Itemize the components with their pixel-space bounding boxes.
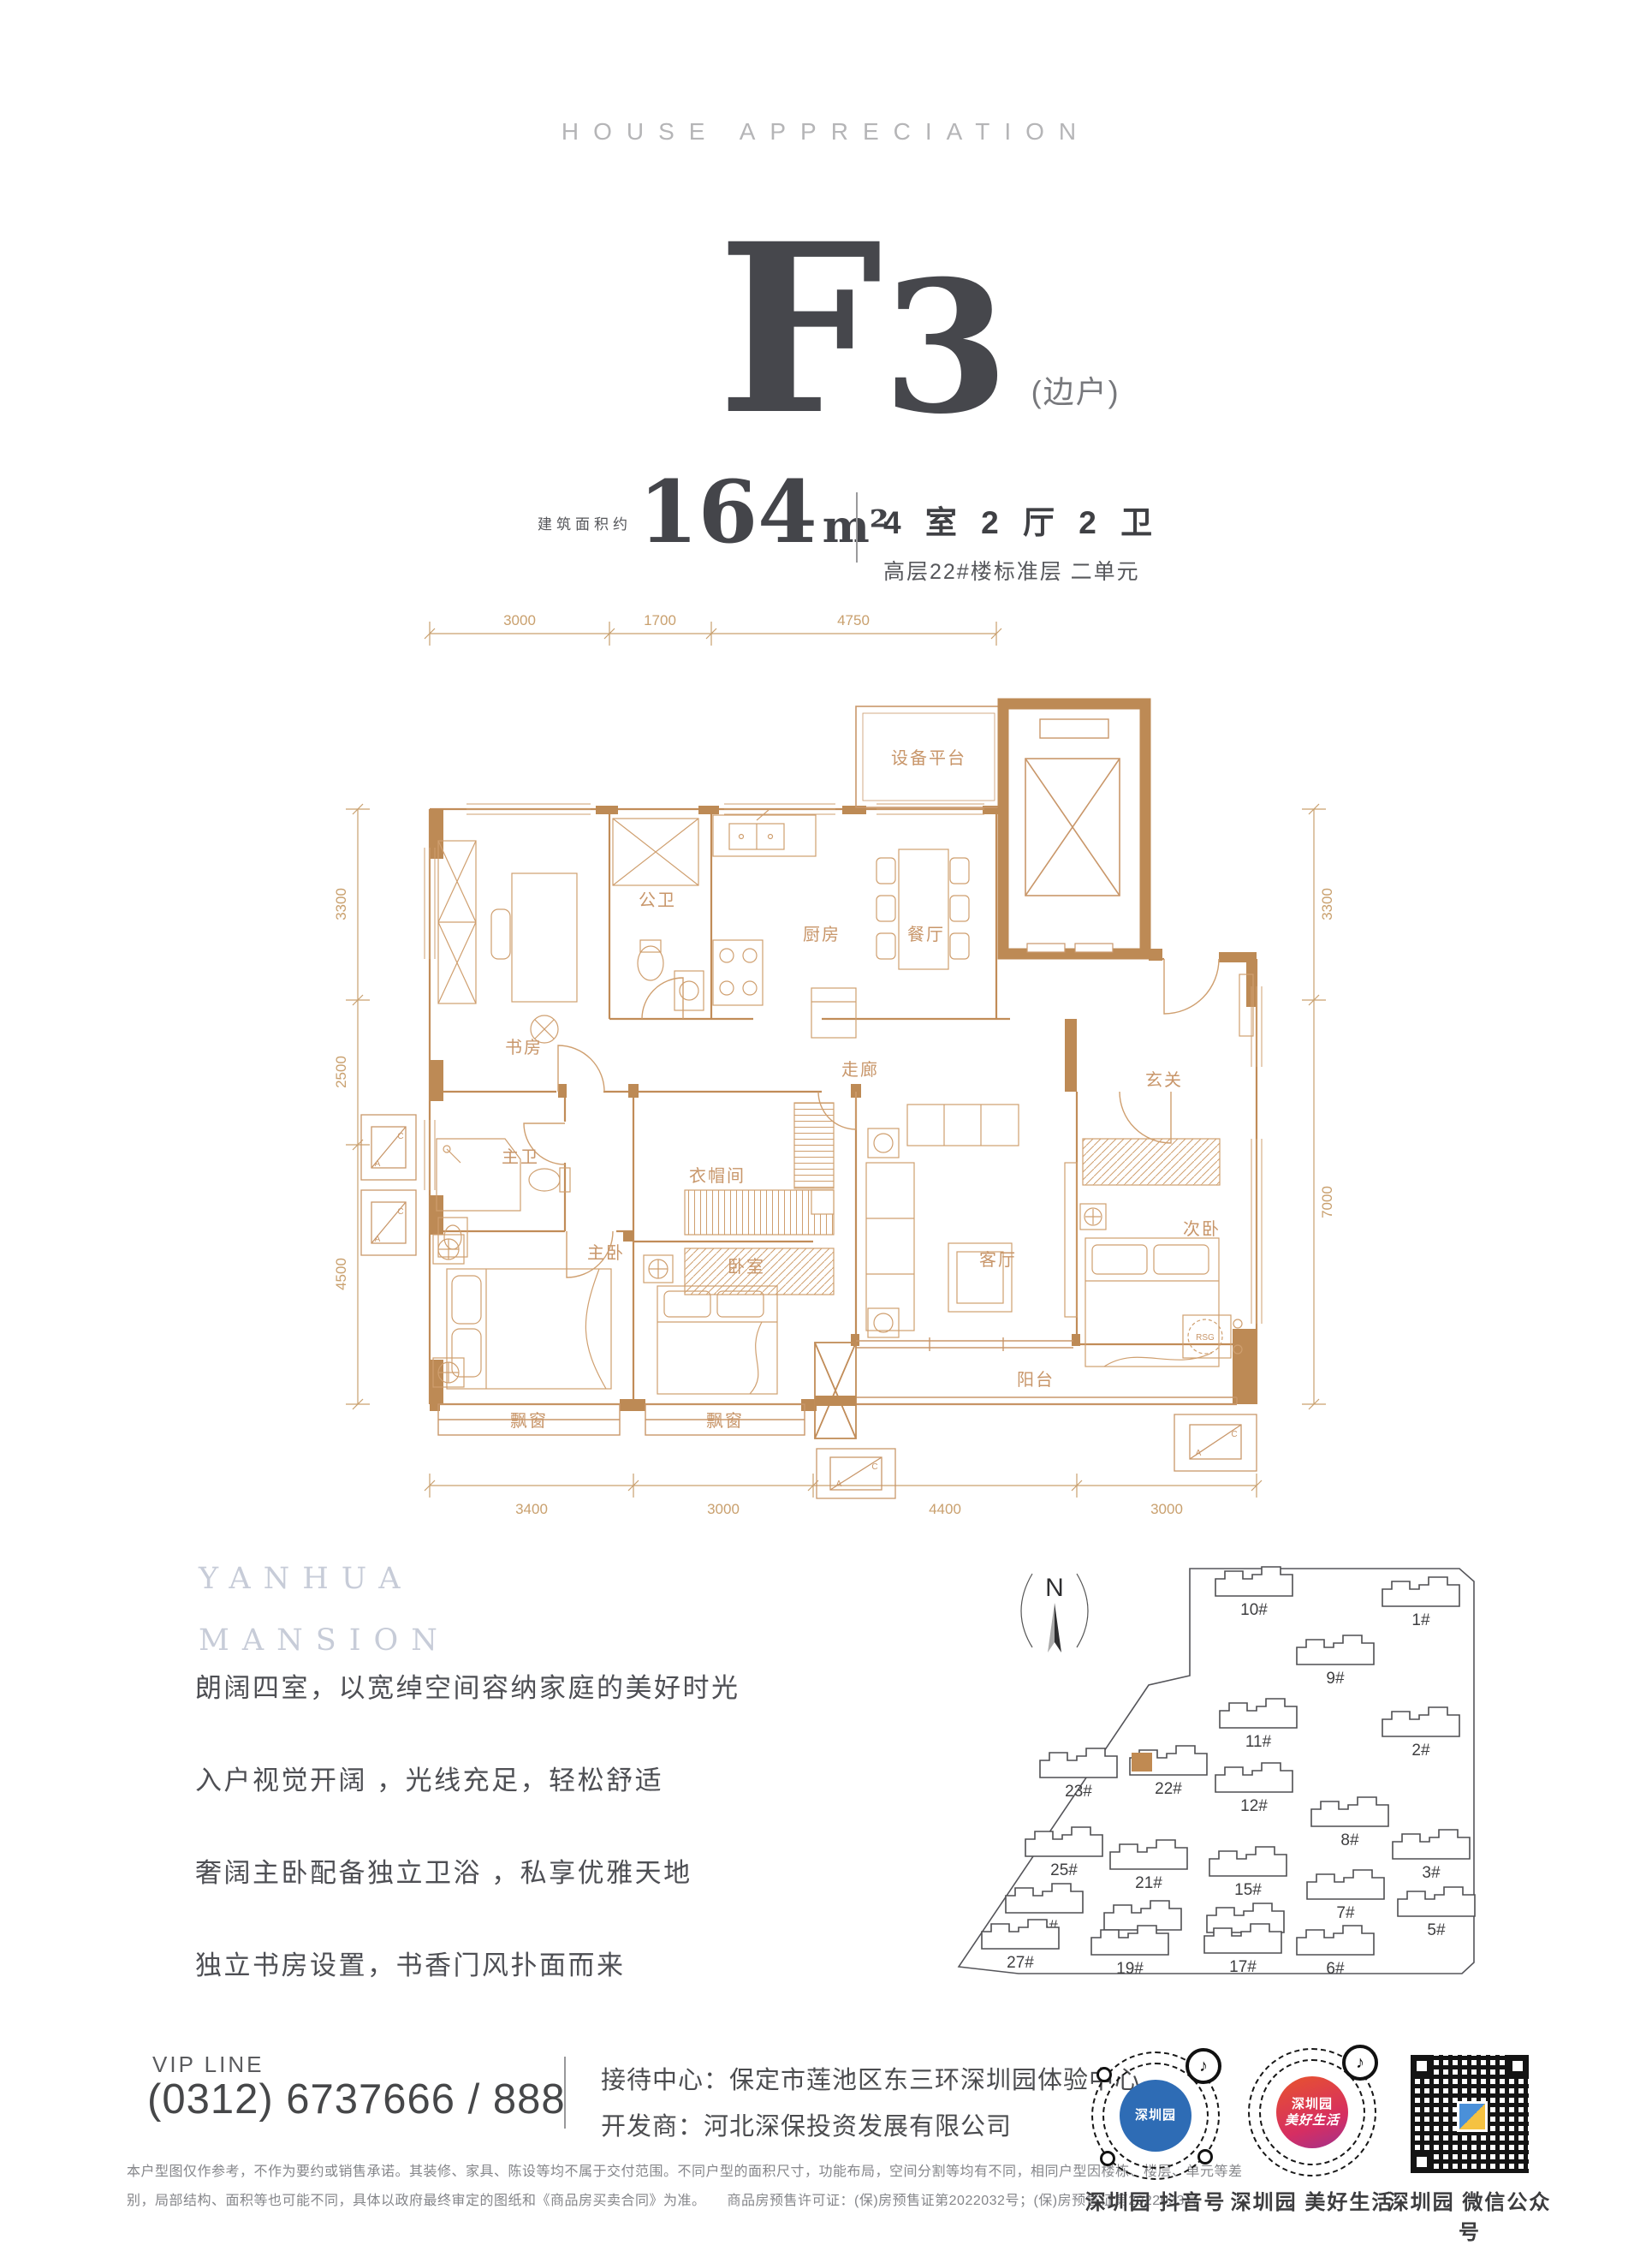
svg-text:C: C — [397, 1132, 403, 1141]
svg-text:9#: 9# — [1326, 1670, 1345, 1688]
description-line: 奢阔主卧配备独立卫浴 ，私享优雅天地 — [195, 1851, 740, 1890]
svg-text:6#: 6# — [1326, 1960, 1345, 1978]
dimension-labels: 3000 1700 4750 3400 3000 4400 3000 3300 … — [333, 612, 1335, 1517]
svg-text:3000: 3000 — [707, 1501, 740, 1517]
qr-logo: 深圳园 美好生活 — [1276, 2076, 1348, 2148]
description-line: 朗阔四室，以宽绰空间容纳家庭的美好时光 — [195, 1666, 740, 1705]
svg-text:飘窗: 飘窗 — [510, 1411, 548, 1431]
description-line: 独立书房设置，书香门风扑面而来 — [195, 1944, 740, 1982]
disclaimer-line2: 别，局部结构、面积等也可能不同，具体以政府最终审定的图纸和《商品房买卖合同》为准… — [127, 2188, 1198, 2209]
doors — [524, 959, 1219, 1277]
svg-text:5#: 5# — [1427, 1921, 1446, 1939]
spec-block: 4 室 2 厅 2 卫 高层22#楼标准层 二单元 — [883, 497, 1160, 586]
area-number: 164 — [639, 469, 817, 555]
svg-text:10#: 10# — [1240, 1601, 1268, 1619]
douyin-qr-code: 深圳园 ♪ — [1091, 2051, 1220, 2180]
qr-finder — [1506, 2055, 1529, 2077]
svg-text:3300: 3300 — [333, 888, 349, 920]
description-line: 入户视觉开阔 ，光线充足，轻松舒适 — [195, 1759, 740, 1797]
qr-logo-text: 深圳园 — [1292, 2096, 1333, 2113]
rsg-label: RSG — [1196, 1333, 1215, 1343]
douyin-qr-label: 深圳园 抖音号 — [1072, 2185, 1239, 2215]
svg-text:A: A — [1196, 1449, 1202, 1458]
unit-note: (边户) — [1031, 367, 1120, 412]
svg-text:4400: 4400 — [929, 1501, 961, 1517]
page-subtitle: HOUSE APPRECIATION — [0, 118, 1652, 146]
svg-text:15#: 15# — [1234, 1881, 1262, 1899]
svg-text:主卫: 主卫 — [502, 1147, 539, 1167]
description: 朗阔四室，以宽绰空间容纳家庭的美好时光 入户视觉开阔 ，光线充足，轻松舒适 奢阔… — [195, 1666, 740, 2036]
svg-text:2500: 2500 — [333, 1056, 349, 1088]
svg-text:N: N — [1045, 1574, 1064, 1602]
balcony-slider — [856, 1337, 1073, 1351]
svg-text:次卧: 次卧 — [1183, 1219, 1221, 1239]
svg-text:7000: 7000 — [1319, 1186, 1335, 1218]
svg-text:A: A — [836, 1480, 842, 1489]
svg-text:主卧: 主卧 — [587, 1243, 625, 1263]
svg-text:1#: 1# — [1411, 1611, 1430, 1629]
svg-text:厨房: 厨房 — [803, 925, 841, 944]
svg-text:8#: 8# — [1340, 1831, 1359, 1849]
qr-logo-text: 深圳园 — [1135, 2107, 1176, 2124]
svg-text:C: C — [397, 1207, 403, 1217]
svg-text:书房: 书房 — [505, 1038, 543, 1057]
svg-text:衣帽间: 衣帽间 — [689, 1166, 746, 1186]
vip-phone-number: (0312) 6737666 / 888 — [147, 2075, 566, 2123]
svg-text:11#: 11# — [1245, 1733, 1272, 1751]
svg-text:走廊: 走廊 — [841, 1060, 879, 1080]
qr-dot — [1100, 2151, 1115, 2166]
svg-text:3000: 3000 — [503, 612, 536, 628]
brand-name: YANHUA MANSION — [199, 1548, 450, 1671]
svg-text:客厅: 客厅 — [979, 1250, 1017, 1270]
unit-letter: F — [717, 214, 882, 447]
svg-text:27#: 27# — [1007, 1954, 1034, 1972]
douyin-life-qr-code: 深圳园 美好生活 ♪ — [1248, 2048, 1376, 2177]
qr-dot — [1197, 2149, 1213, 2165]
qr-finder — [1411, 2055, 1433, 2077]
floorplan-poster: { "header": { "subtitle": "HOUSE APPRECI… — [0, 0, 1652, 2243]
qr-finder — [1411, 2151, 1433, 2173]
svg-text:餐厅: 餐厅 — [907, 925, 945, 944]
svg-text:22#: 22# — [1155, 1780, 1182, 1798]
svg-text:25#: 25# — [1050, 1861, 1078, 1879]
svg-text:3400: 3400 — [515, 1501, 548, 1517]
disclaimer-line1: 本户型图仅作参考，不作为要约或销售承诺。其装修、家具、陈设等均不属于交付范围。不… — [127, 2159, 1243, 2180]
svg-text:A: A — [375, 1159, 381, 1169]
svg-text:玄关: 玄关 — [1145, 1070, 1183, 1090]
svg-text:3300: 3300 — [1319, 888, 1335, 920]
qr-logo: 深圳园 — [1120, 2080, 1191, 2152]
spec-divider — [856, 492, 858, 563]
svg-text:23#: 23# — [1065, 1783, 1092, 1801]
svg-text:4500: 4500 — [333, 1258, 349, 1290]
svg-text:A: A — [375, 1235, 381, 1244]
svg-text:12#: 12# — [1240, 1797, 1268, 1815]
svg-text:卧室: 卧室 — [728, 1257, 765, 1277]
column — [815, 1343, 856, 1438]
svg-text:3000: 3000 — [1150, 1501, 1183, 1517]
reception-address: 接待中心：保定市莲池区东三环深圳园体验中心 — [601, 2060, 1140, 2096]
svg-text:4750: 4750 — [837, 612, 870, 628]
qr-dot — [1096, 2067, 1112, 2082]
brand-line2: MANSION — [199, 1610, 450, 1671]
svg-text:飘窗: 飘窗 — [706, 1411, 744, 1431]
qr-logo-text2: 美好生活 — [1285, 2112, 1340, 2129]
rooms-spec: 4 室 2 厅 2 卫 — [883, 497, 1160, 543]
north-compass: N — [1021, 1574, 1088, 1652]
floor-plan: 3000 1700 4750 3400 3000 4400 3000 3300 … — [308, 591, 1404, 1524]
svg-text:公卫: 公卫 — [639, 891, 676, 910]
svg-text:21#: 21# — [1135, 1874, 1162, 1892]
tiktok-icon: ♪ — [1186, 2048, 1221, 2084]
developer-name: 开发商：河北深保投资发展有限公司 — [601, 2106, 1012, 2142]
brand-line1: YANHUA — [199, 1548, 450, 1610]
site-map: N 10# 1# 9# 11# 2# 23# 22# 12# 8# 25# 21… — [924, 1517, 1592, 1980]
unit-digit: 3 — [882, 257, 1009, 438]
tiktok-icon: ♪ — [1342, 2045, 1378, 2081]
svg-text:3#: 3# — [1422, 1864, 1441, 1882]
douyin-life-qr-label: 深圳园 美好生活 — [1224, 2185, 1400, 2215]
qr-center-logo — [1457, 2101, 1488, 2132]
svg-text:17#: 17# — [1229, 1958, 1257, 1976]
vip-line-label: VIP LINE — [152, 2051, 264, 2078]
svg-text:C: C — [1231, 1430, 1237, 1439]
elevator-shaft — [1003, 704, 1145, 954]
svg-text:阳台: 阳台 — [1017, 1370, 1055, 1390]
wechat-qr-label: 深圳园 微信公众号 — [1380, 2185, 1560, 2245]
svg-text:C: C — [871, 1462, 877, 1472]
svg-text:2#: 2# — [1411, 1742, 1430, 1760]
svg-text:7#: 7# — [1336, 1904, 1355, 1922]
wechat-qr-code — [1411, 2055, 1529, 2173]
footer-divider — [564, 2057, 566, 2129]
floor-spec: 高层22#楼标准层 二单元 — [883, 555, 1160, 586]
svg-text:设备平台: 设备平台 — [891, 748, 966, 768]
svg-text:1700: 1700 — [644, 612, 676, 628]
svg-text:19#: 19# — [1116, 1960, 1144, 1978]
area-value: 164 m² — [639, 469, 889, 555]
area-label: 建筑面积约 — [538, 512, 632, 533]
unit-title: F 3 (边户) — [717, 214, 1120, 447]
